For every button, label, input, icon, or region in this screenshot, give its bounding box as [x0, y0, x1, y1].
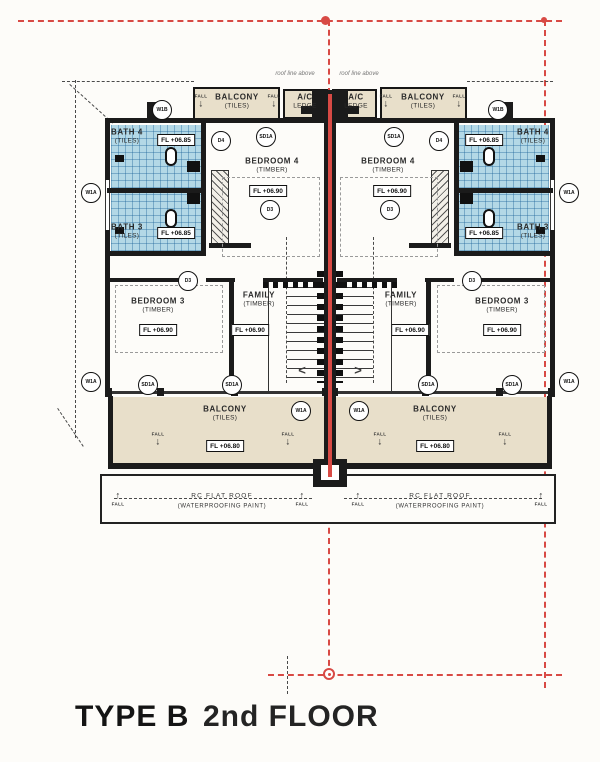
reference-bubble-w1a: W1A — [291, 401, 311, 421]
reference-bubble-w1a: W1A — [81, 372, 101, 392]
drawing-element: FALL — [535, 501, 548, 506]
reference-bubble-w1b: W1B — [488, 100, 508, 120]
room-label-balcony: BALCONY(TILES) — [413, 404, 457, 421]
fall-down-arrow-icon: ↓ — [374, 437, 387, 448]
room-label-balcony: BALCONY(TILES) — [203, 404, 247, 421]
drawing-element: (TILES) — [111, 137, 143, 145]
room-label-bath-4: BATH 4(TILES) — [111, 127, 143, 144]
drawing-element: BATH 4 — [517, 127, 549, 137]
drawing-element: (WATERPROOFING PAINT) — [178, 501, 267, 511]
drawing-element: FAMILY — [243, 290, 275, 300]
room-label-balcony: BALCONY(TILES) — [215, 92, 259, 109]
drawing-element: LEDGE — [293, 102, 317, 110]
room-label-bedroom-3: BEDROOM 3(TIMBER) — [131, 296, 185, 313]
floor-plan-drawing: BALCONY(TILES)A/CLEDGEA/CLEDGEBALCONY(TI… — [0, 0, 600, 762]
drawing-element: A/C — [293, 92, 317, 102]
reference-bubble-sd1a: SD1A — [222, 375, 242, 395]
drawing-element: (TIMBER) — [245, 166, 299, 174]
room-label-bedroom-3: BEDROOM 3(TIMBER) — [475, 296, 529, 313]
drawing-element: FALL — [112, 501, 125, 506]
reference-bubble-d4: D4 — [211, 131, 231, 151]
room-label-bath-4: BATH 4(TILES) — [517, 127, 549, 144]
drawing-element: LEDGE — [344, 102, 368, 110]
floor-level-box: FL +06.90 — [483, 324, 521, 336]
reference-bubble-sd1a: SD1A — [502, 375, 522, 395]
room-label-bedroom-4: BEDROOM 4(TIMBER) — [361, 156, 415, 173]
fall-annotation: FALL↓ — [453, 94, 466, 109]
reference-bubble-d4: D4 — [429, 131, 449, 151]
drawing-element: BALCONY — [413, 404, 457, 414]
fall-down-arrow-icon: ↓ — [268, 99, 281, 110]
floor-level-box: FL +06.90 — [373, 185, 411, 197]
drawing-element: A/C — [344, 92, 368, 102]
roof-strip-label: RC FLAT ROOF(WATERPROOFING PAINT) — [396, 490, 485, 511]
room-label-a-c: A/CLEDGE — [344, 92, 368, 109]
room-label-bedroom-4: BEDROOM 4(TIMBER) — [245, 156, 299, 173]
room-label-a-c: A/CLEDGE — [293, 92, 317, 109]
fall-down-arrow-icon: ↓ — [282, 437, 295, 448]
drawing-element: (TILES) — [215, 102, 259, 110]
floor-level-box: FL +06.90 — [231, 324, 269, 336]
fall-down-arrow-icon: ↓ — [380, 99, 393, 110]
reference-bubble-w1b: W1B — [152, 100, 172, 120]
drawing-element: (TIMBER) — [475, 306, 529, 314]
floor-level-box: FL +06.85 — [157, 134, 195, 146]
floor-level-box: FL +06.80 — [206, 440, 244, 452]
reference-bubble-d3: D3 — [380, 200, 400, 220]
roof-line-note: roof line above — [275, 71, 314, 77]
room-label-family: FAMILY(TIMBER) — [243, 290, 275, 307]
reference-bubble-sd1a: SD1A — [256, 127, 276, 147]
drawing-element: BALCONY — [215, 92, 259, 102]
drawing-element: (TIMBER) — [131, 306, 185, 314]
drawing-element: (TIMBER) — [361, 166, 415, 174]
reference-bubble-d3: D3 — [260, 200, 280, 220]
fall-annotation: FALL↓ — [152, 432, 165, 447]
stair-direction-arrow-icon: > — [354, 363, 362, 378]
fall-annotation: ↑FALL — [352, 491, 365, 506]
drawing-element: (TILES) — [203, 414, 247, 422]
drawing-element: FALL — [296, 501, 309, 506]
drawing-element: (TIMBER) — [385, 300, 417, 308]
drawing-element: RC FLAT ROOF — [396, 490, 485, 501]
fall-annotation: FALL↓ — [499, 432, 512, 447]
fall-annotation: ↑FALL — [296, 491, 309, 506]
reference-bubble-d3: D3 — [462, 271, 482, 291]
fall-annotation: FALL↓ — [268, 94, 281, 109]
fall-down-arrow-icon: ↓ — [499, 437, 512, 448]
fall-down-arrow-icon: ↓ — [152, 437, 165, 448]
floor-level-box: FL +06.90 — [391, 324, 429, 336]
drawing-element: (TILES) — [401, 102, 445, 110]
drawing-element: BEDROOM 3 — [131, 296, 185, 306]
reference-bubble-sd1a: SD1A — [384, 127, 404, 147]
floor-level-box: FL +06.80 — [416, 440, 454, 452]
stair-direction-arrow-icon: < — [298, 363, 306, 378]
drawing-element: BALCONY — [203, 404, 247, 414]
room-label-bath-3: BATH 3(TILES) — [517, 222, 549, 239]
roof-line-note: roof line above — [339, 71, 378, 77]
reference-bubble-w1a: W1A — [349, 401, 369, 421]
room-label-bath-3: BATH 3(TILES) — [111, 222, 143, 239]
drawing-element: BATH 3 — [111, 222, 143, 232]
fall-down-arrow-icon: ↓ — [453, 99, 466, 110]
reference-bubble-w1a: W1A — [559, 183, 579, 203]
floor-level-box: FL +06.90 — [139, 324, 177, 336]
reference-bubble-sd1a: SD1A — [138, 375, 158, 395]
fall-annotation: FALL↓ — [374, 432, 387, 447]
drawing-element: (TILES) — [517, 232, 549, 240]
floor-plan-page: BALCONY(TILES)A/CLEDGEA/CLEDGEBALCONY(TI… — [0, 0, 600, 762]
floor-level-box: FL +06.90 — [249, 185, 287, 197]
drawing-element: BATH 4 — [111, 127, 143, 137]
reference-bubble-w1a: W1A — [81, 183, 101, 203]
floor-level-box: FL +06.85 — [465, 227, 503, 239]
drawing-element: (TIMBER) — [243, 300, 275, 308]
room-label-family: FAMILY(TIMBER) — [385, 290, 417, 307]
drawing-element: (TILES) — [413, 414, 457, 422]
fall-annotation: FALL↓ — [282, 432, 295, 447]
drawing-element: BATH 3 — [517, 222, 549, 232]
reference-bubble-d3: D3 — [178, 271, 198, 291]
floor-level-box: FL +06.85 — [465, 134, 503, 146]
drawing-element: FALL — [352, 501, 365, 506]
fall-down-arrow-icon: ↓ — [195, 99, 208, 110]
drawing-element: (WATERPROOFING PAINT) — [396, 501, 485, 511]
reference-bubble-w1a: W1A — [559, 372, 579, 392]
fall-annotation: ↑FALL — [112, 491, 125, 506]
room-label-balcony: BALCONY(TILES) — [401, 92, 445, 109]
fall-annotation: ↑FALL — [535, 491, 548, 506]
drawing-element: FAMILY — [385, 290, 417, 300]
drawing-element: (TILES) — [111, 232, 143, 240]
reference-bubble-sd1a: SD1A — [418, 375, 438, 395]
drawing-element: BEDROOM 4 — [361, 156, 415, 166]
floor-level-box: FL +06.85 — [157, 227, 195, 239]
drawing-element: BEDROOM 3 — [475, 296, 529, 306]
fall-annotation: FALL↓ — [380, 94, 393, 109]
drawing-element: RC FLAT ROOF — [178, 490, 267, 501]
roof-strip-label: RC FLAT ROOF(WATERPROOFING PAINT) — [178, 490, 267, 511]
drawing-element: BEDROOM 4 — [245, 156, 299, 166]
drawing-element: (TILES) — [517, 137, 549, 145]
drawing-element: BALCONY — [401, 92, 445, 102]
fall-annotation: FALL↓ — [195, 94, 208, 109]
annotation-overlay: BALCONY(TILES)A/CLEDGEA/CLEDGEBALCONY(TI… — [0, 0, 600, 762]
